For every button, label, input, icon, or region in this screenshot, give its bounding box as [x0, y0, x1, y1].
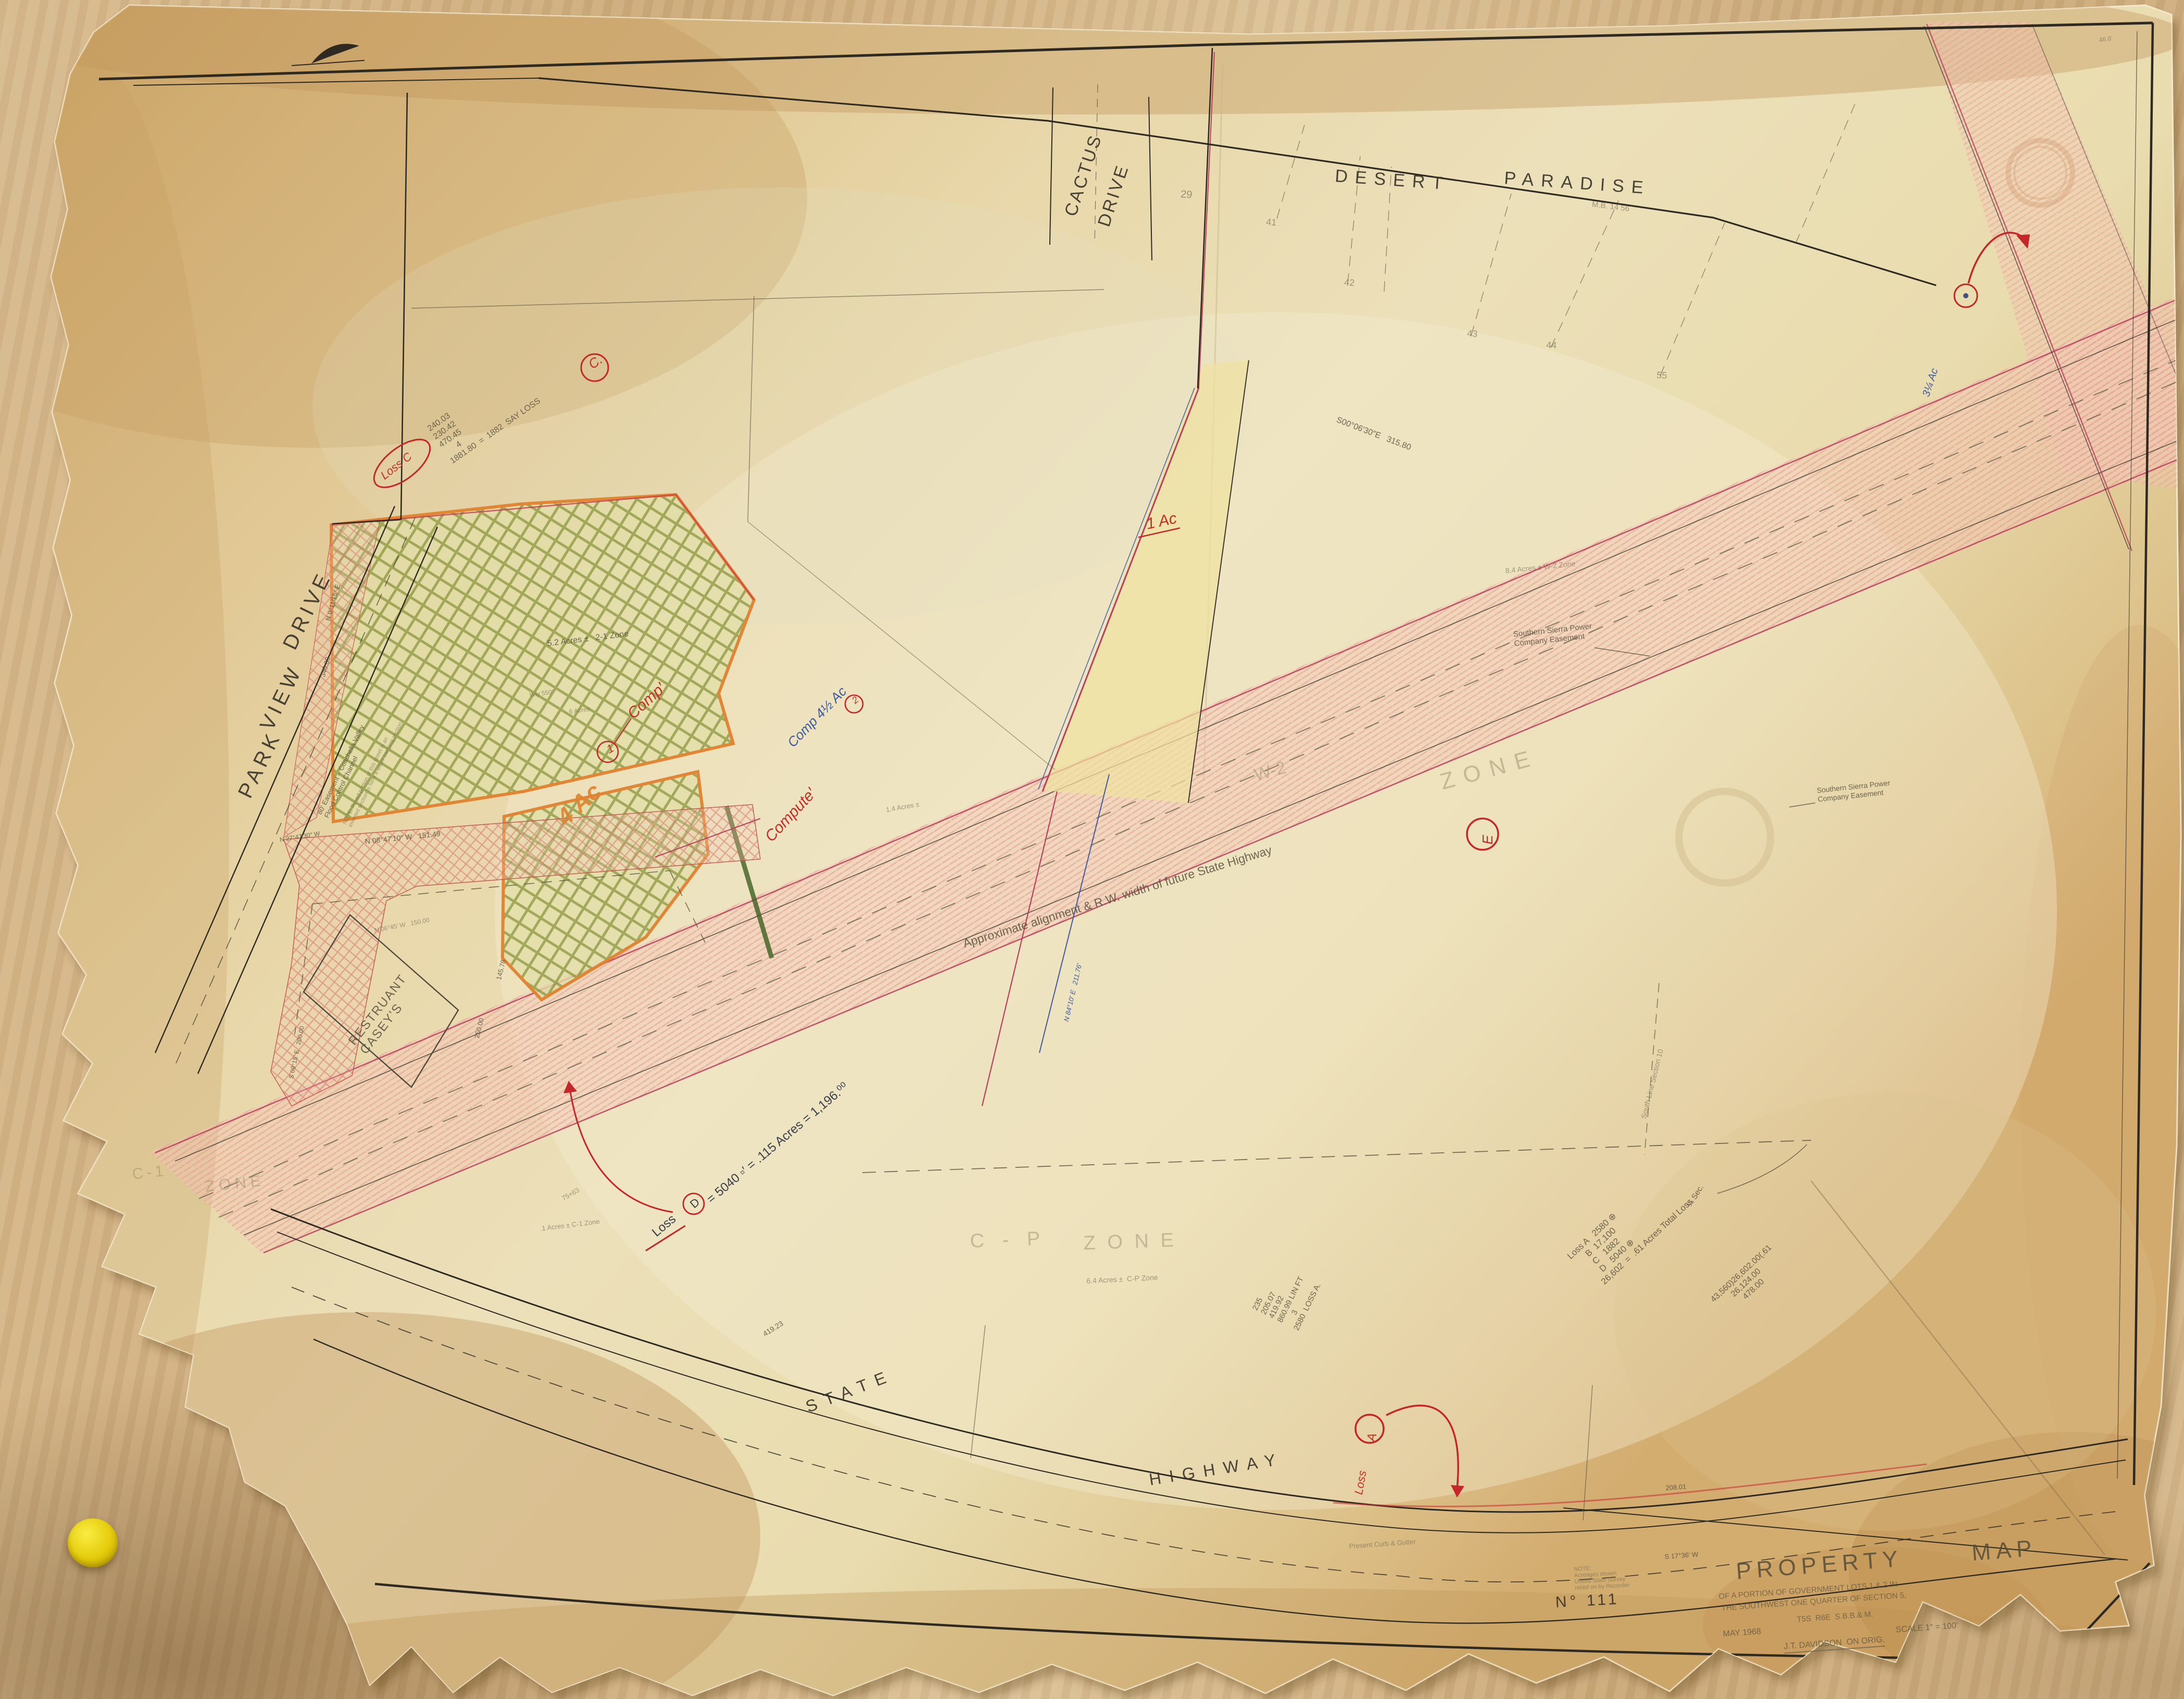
- title-block-note: NOTE: Acreages shown United State Survey…: [1574, 1563, 1630, 1591]
- map-artwork: [0, 0, 2184, 1699]
- yellow-cap: [68, 1518, 118, 1567]
- photo-of-property-map: CACTUSDRIVEDESERTPARADISEM.B. 14 5629414…: [0, 0, 2184, 1699]
